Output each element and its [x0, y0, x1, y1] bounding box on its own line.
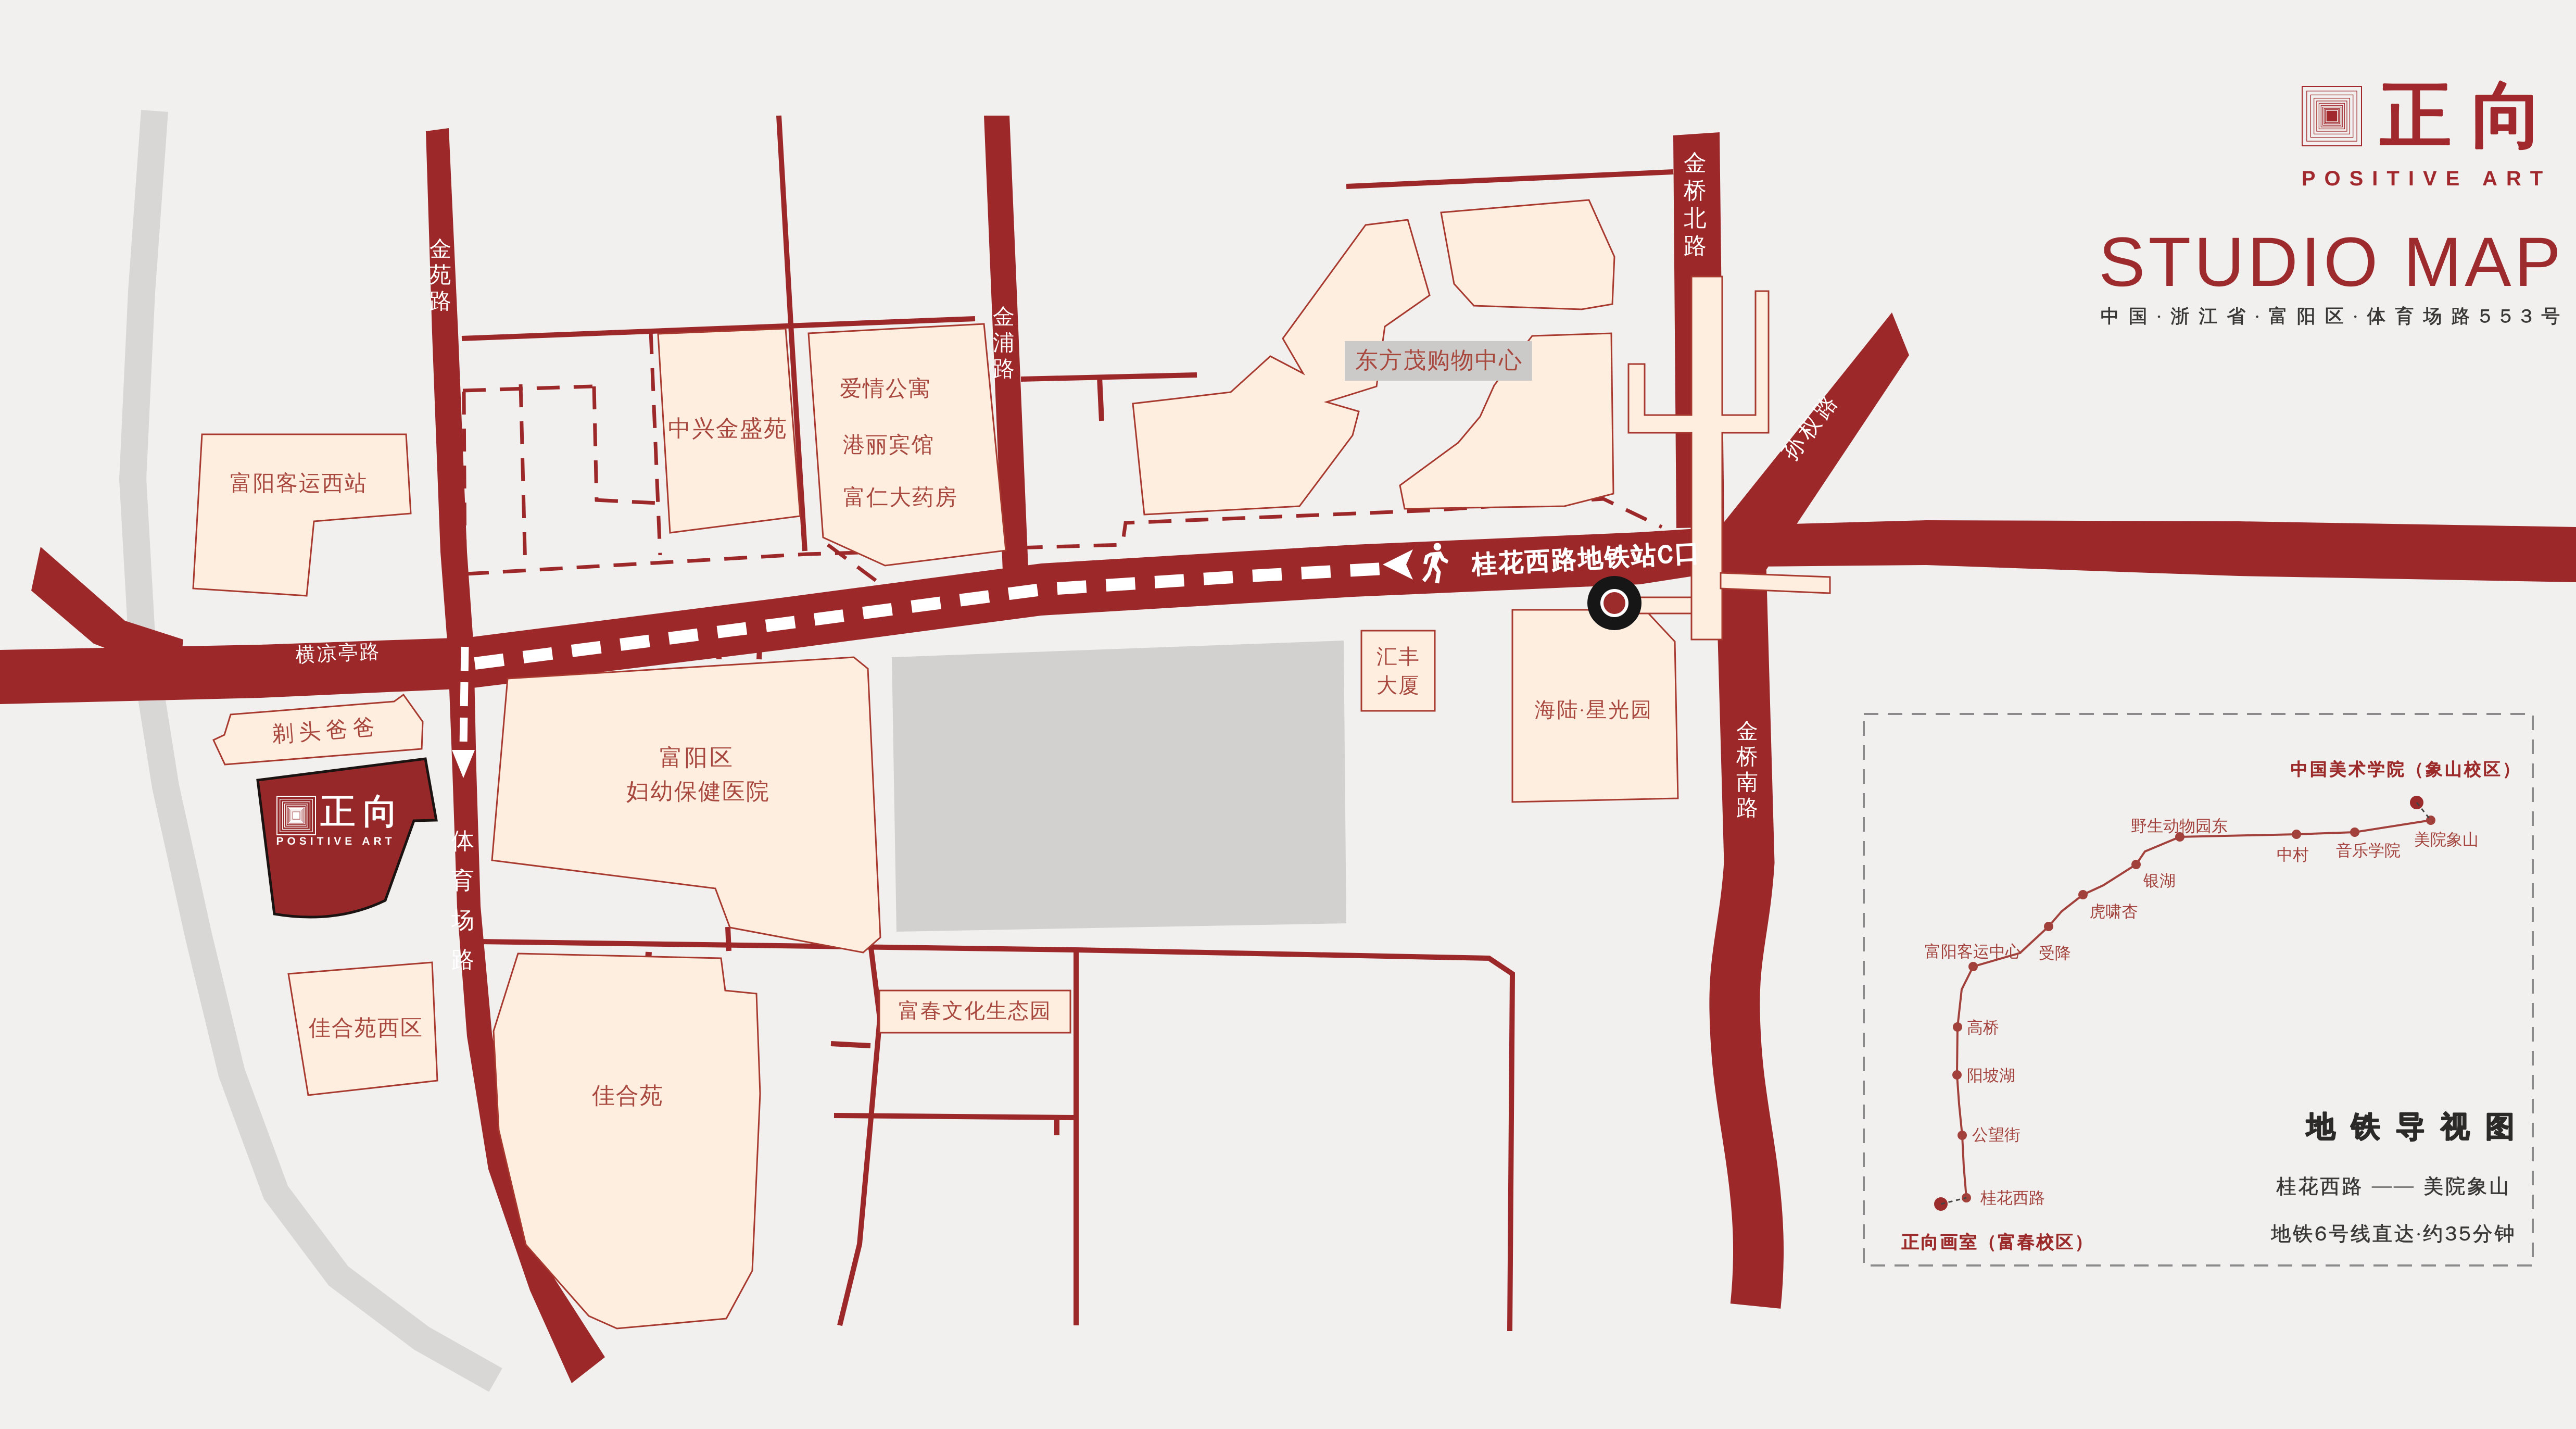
svg-text:POSITIVE ART: POSITIVE ART [2302, 167, 2552, 190]
svg-text:POSITIVE ART: POSITIVE ART [276, 835, 395, 847]
svg-text:STUDIO MAP: STUDIO MAP [2099, 223, 2564, 301]
